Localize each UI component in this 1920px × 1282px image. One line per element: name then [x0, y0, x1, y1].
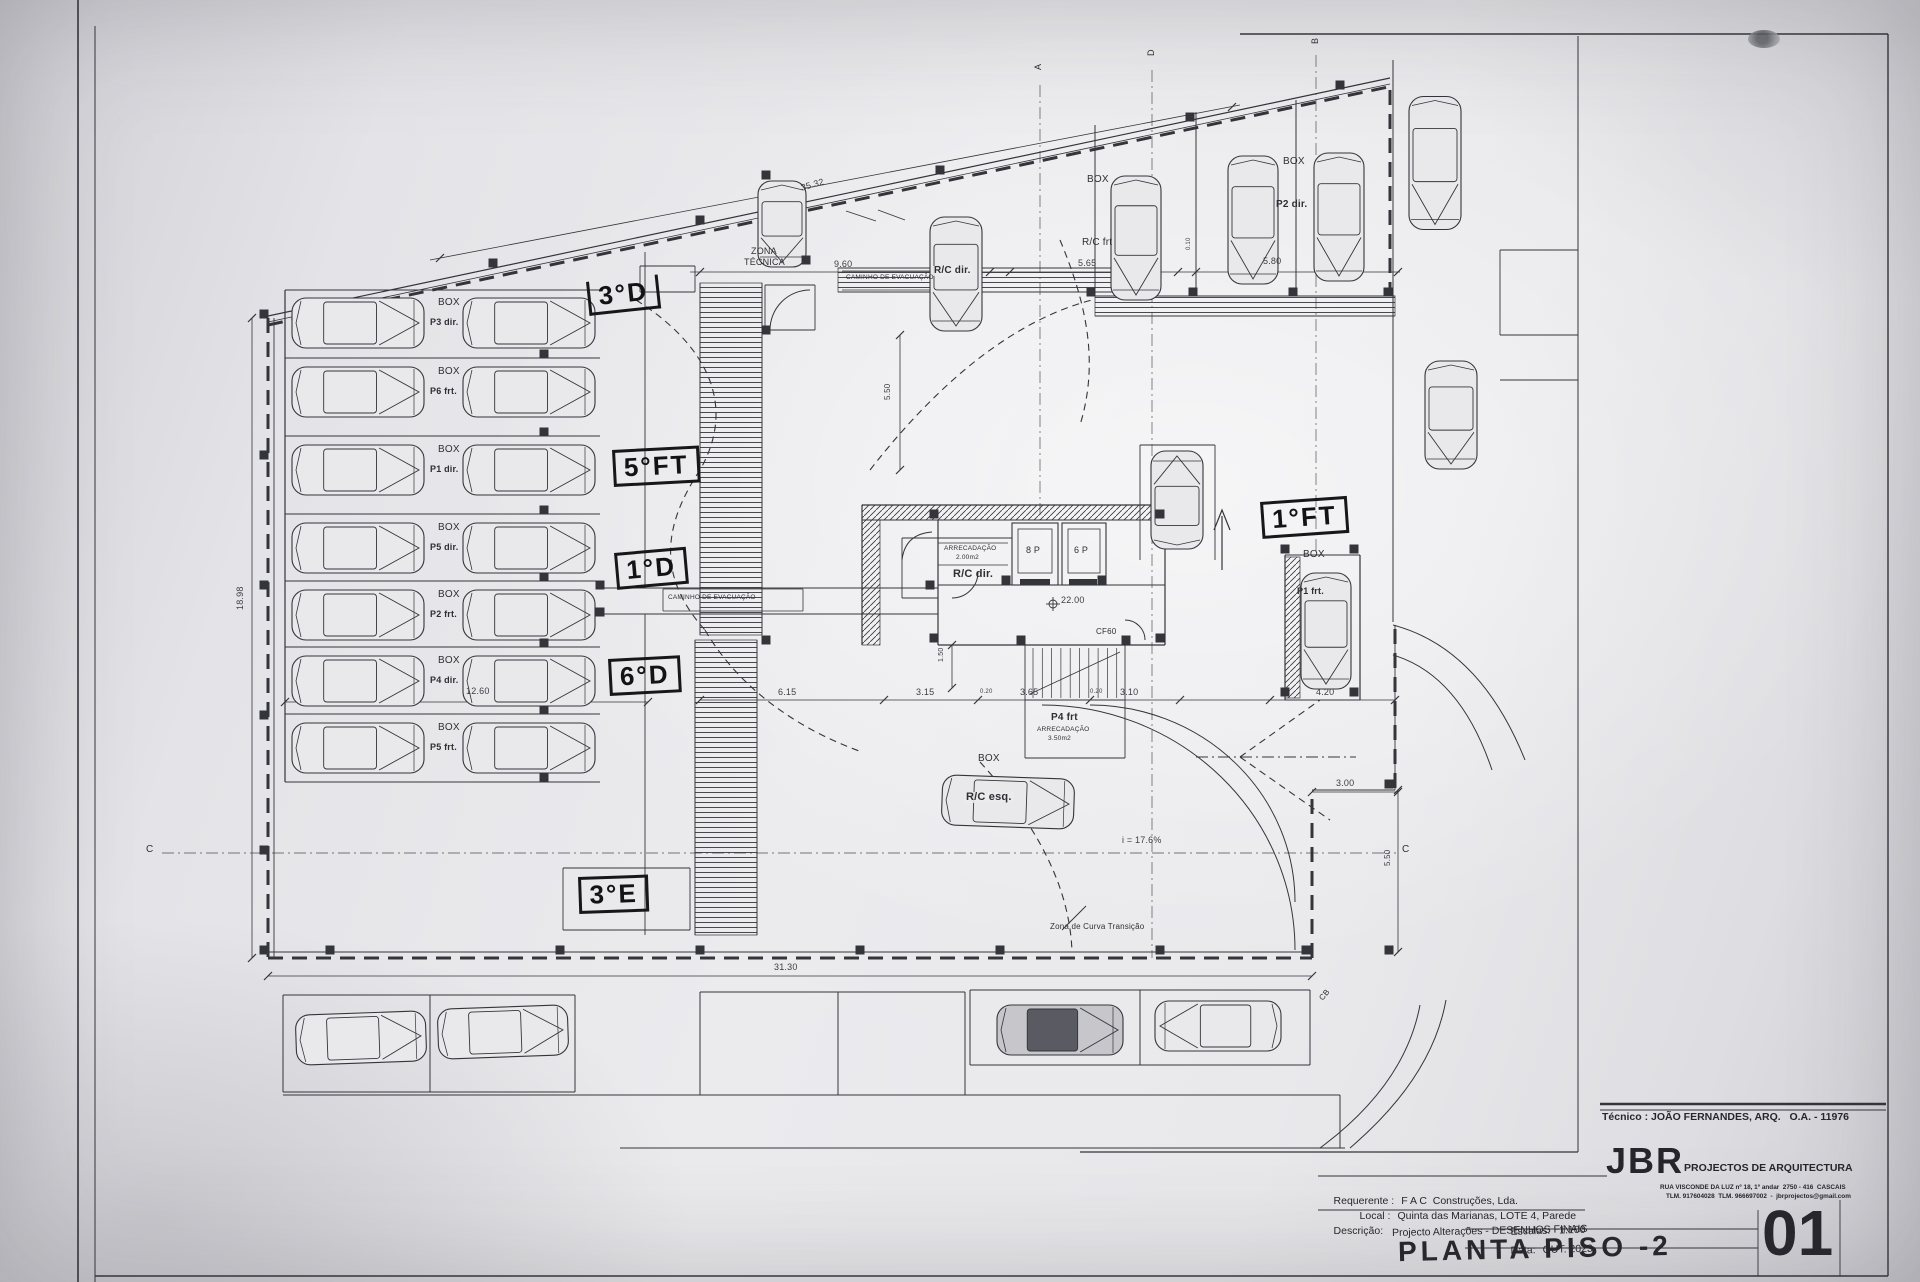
car-icon: [463, 445, 595, 495]
car-icon: [1425, 361, 1477, 469]
car-icon: [437, 1005, 569, 1060]
car-icon: [463, 590, 595, 640]
car-icon: [463, 367, 595, 417]
road-curves: [770, 290, 1525, 1148]
photographed-floor-plan-sheet: ZONATÉCNICA35.329.60R/C dir.5.650.105.80…: [0, 0, 1920, 1282]
wall-hatching: [695, 268, 1395, 935]
car-icon: [463, 723, 595, 773]
car-icon: [1314, 153, 1364, 281]
property-boundary-dashed: [268, 87, 1395, 958]
car-icon: [463, 656, 595, 706]
floor-plan-linework: [0, 0, 1920, 1282]
car-icon: [941, 775, 1075, 830]
clip-shadow-mark: [1748, 30, 1780, 48]
car-icon: [295, 1011, 427, 1066]
car-icon: [997, 1005, 1123, 1055]
plan-walls-and-lines: [78, 0, 1888, 1282]
car-icon: [292, 656, 424, 706]
car-icon: [292, 298, 424, 348]
car-icon: [292, 523, 424, 573]
car-icon: [930, 217, 982, 331]
column-markers: [260, 81, 1394, 955]
car-icon: [292, 367, 424, 417]
car-icon: [1151, 451, 1203, 549]
car-icon: [1111, 176, 1161, 300]
car-icon: [1301, 573, 1351, 689]
car-icon: [463, 298, 595, 348]
car-icon: [1228, 156, 1278, 284]
car-icon: [1155, 1001, 1281, 1051]
car-icon: [1409, 97, 1461, 230]
car-icon: [758, 181, 806, 267]
car-icon: [292, 590, 424, 640]
car-icon: [292, 445, 424, 495]
car-icon: [463, 523, 595, 573]
car-icon: [292, 723, 424, 773]
